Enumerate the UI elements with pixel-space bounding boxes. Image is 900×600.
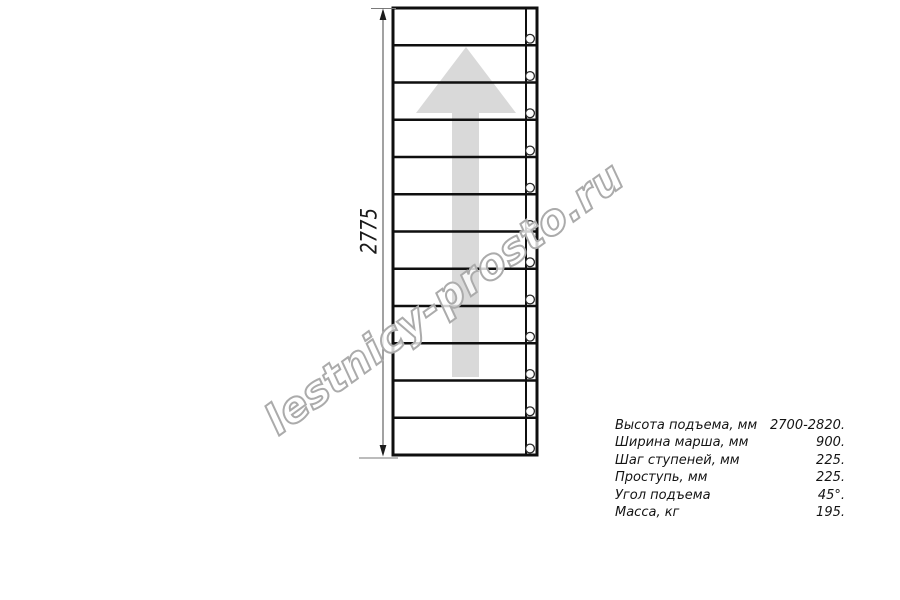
spec-value: 2700-2820. xyxy=(770,417,845,434)
mount-hole xyxy=(526,72,535,81)
spec-label: Шаг ступеней, мм xyxy=(615,452,740,469)
mount-hole xyxy=(526,444,535,453)
spec-row: Высота подъема, мм 2700-2820. xyxy=(615,417,845,434)
spec-label: Масса, кг xyxy=(615,504,679,521)
drawing-canvas: 2775 lestnicy-prosto.ru Высота подъема, … xyxy=(0,0,900,600)
dimension-arrowhead-bottom xyxy=(380,445,387,457)
dimension-arrowhead-top xyxy=(380,9,387,21)
mount-hole xyxy=(526,109,535,118)
spec-value: 225. xyxy=(816,469,845,486)
mount-hole xyxy=(526,370,535,379)
spec-table: Высота подъема, мм 2700-2820. Ширина мар… xyxy=(615,417,845,521)
spec-label: Высота подъема, мм xyxy=(615,417,757,434)
mount-hole xyxy=(526,183,535,192)
spec-row: Масса, кг 195. xyxy=(615,504,845,521)
mount-hole xyxy=(526,34,535,43)
mount-hole xyxy=(526,258,535,267)
mount-hole xyxy=(526,295,535,304)
spec-label: Угол подъема xyxy=(615,487,711,504)
mount-hole xyxy=(526,146,535,155)
dimension-value: 2775 xyxy=(358,208,383,254)
spec-value: 195. xyxy=(816,504,845,521)
spec-label: Проступь, мм xyxy=(615,469,707,486)
mount-hole xyxy=(526,221,535,230)
spec-row: Угол подъема 45°. xyxy=(615,487,845,504)
mount-hole xyxy=(526,332,535,341)
spec-value: 225. xyxy=(816,452,845,469)
spec-value: 45°. xyxy=(818,487,845,504)
mount-hole xyxy=(526,407,535,416)
spec-row: Шаг ступеней, мм 225. xyxy=(615,452,845,469)
spec-row: Ширина марша, мм 900. xyxy=(615,434,845,451)
spec-label: Ширина марша, мм xyxy=(615,434,748,451)
spec-value: 900. xyxy=(816,434,845,451)
spec-row: Проступь, мм 225. xyxy=(615,469,845,486)
